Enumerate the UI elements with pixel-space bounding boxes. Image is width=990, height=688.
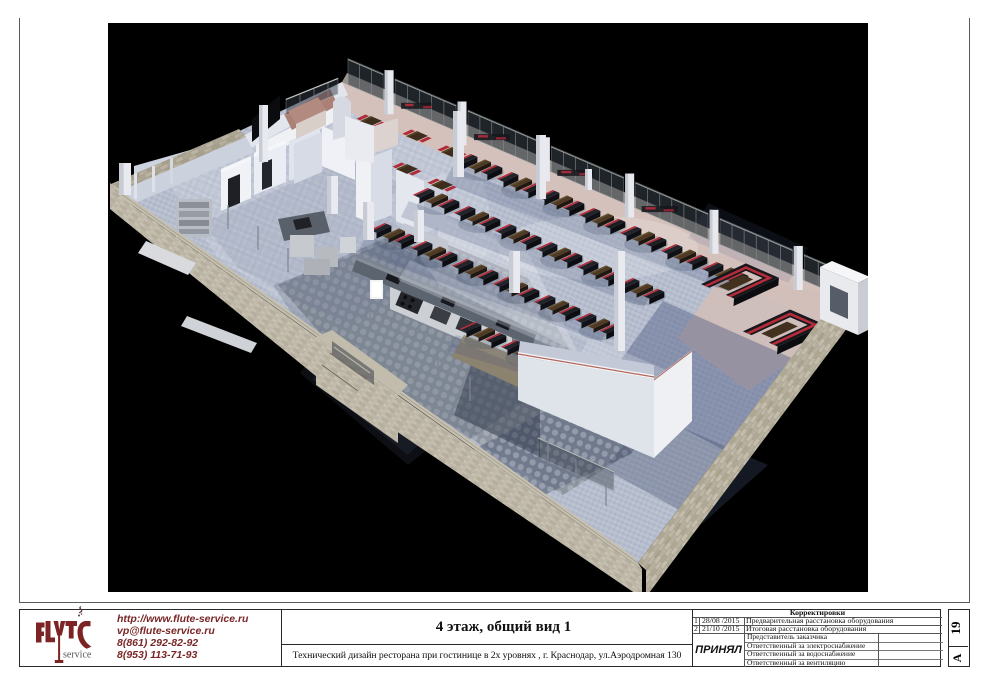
svg-text:service: service xyxy=(63,650,92,661)
